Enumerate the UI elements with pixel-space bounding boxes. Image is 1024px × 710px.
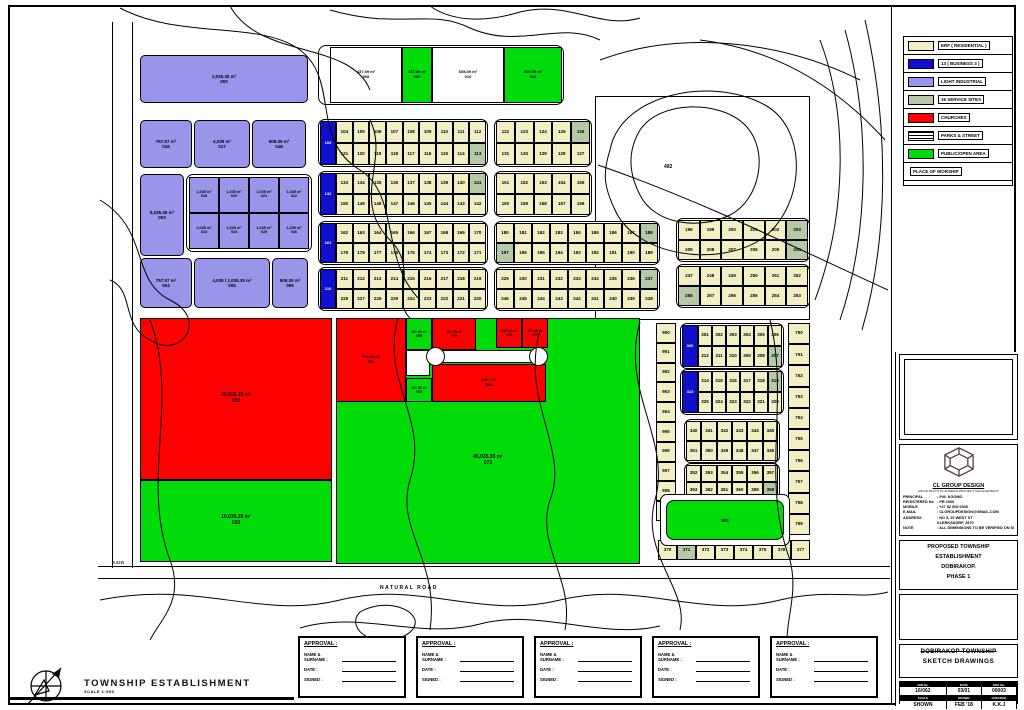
plot-cell-309: 309 <box>740 346 754 367</box>
plot-cell-182: 182 <box>532 223 550 243</box>
plot-cell-226: 226 <box>369 289 386 309</box>
plot-cell-341: 341 <box>701 421 716 441</box>
plot-cell-173: 173 <box>436 243 453 263</box>
signature-line <box>696 678 750 682</box>
plot-cell-902: 902 <box>656 363 676 383</box>
plot-cell-346: 346 <box>763 441 778 461</box>
signature-line <box>460 668 514 672</box>
cul-de-sac-street <box>426 346 548 368</box>
plot-cell-208: 208 <box>700 240 722 260</box>
plot-cell-130: 130 <box>515 143 534 165</box>
plot-cell-121: 121 <box>336 143 353 165</box>
zone-label: 437.09 m²059 <box>411 330 427 338</box>
signature-line <box>578 658 632 662</box>
approval-field-label: DATE : <box>776 667 814 672</box>
industrial-block-005: 4,035 / 1,035.35 m²005 <box>194 258 270 308</box>
plot-cell-318: 318 <box>754 371 768 392</box>
industrial-cell-025: 1,035 m²025 <box>249 213 279 249</box>
plot-cell-302: 302 <box>712 325 726 346</box>
plot-block: 2292302312322332342352362372462452442432… <box>494 267 660 311</box>
plot-cell-348: 348 <box>732 441 747 461</box>
project-title-line: PROPOSED TOWNSHIP <box>900 543 1017 553</box>
road-edge-bottom-1 <box>98 566 890 567</box>
table-cell: 00003 <box>982 687 1017 695</box>
industrial-label: 509.35 m²018 <box>269 139 290 150</box>
road-edge-left-1 <box>112 22 113 568</box>
legend-row: LIGHT INDUSTRIAL <box>904 73 1012 91</box>
approval-box-2: APPROVAL :NAME & SURNAME :DATE :SIGNED : <box>416 636 524 698</box>
plot-cell-223: 223 <box>419 289 436 309</box>
footer-underline <box>8 697 294 700</box>
plot-block: 1611621631641651661671681691701791781771… <box>318 221 488 265</box>
plot-cell-258: 258 <box>678 286 700 306</box>
plot-cell-195: 195 <box>532 243 550 263</box>
plot-cell-904: 904 <box>656 402 676 422</box>
zone-label: 10,035.35 m²033 <box>221 515 251 527</box>
plot-cell-203: 203 <box>786 220 808 240</box>
zone-label: 437.09 m²067 <box>527 329 543 337</box>
table-cell: FEB '18 <box>947 701 982 710</box>
plot-cell-314: 314 <box>698 371 712 392</box>
plot-cell-160: 160 <box>496 194 515 215</box>
plot-cell-108: 108 <box>403 121 420 143</box>
business-plot-103: 103 <box>320 121 336 165</box>
plot-cell-907: 907 <box>656 462 676 482</box>
plot-cell-176: 176 <box>386 243 403 263</box>
plot-cell-190: 190 <box>622 243 640 263</box>
plot-cell-325: 325 <box>698 392 712 413</box>
plot-cell-209: 209 <box>678 240 700 260</box>
plot-cell-148: 148 <box>369 194 386 215</box>
approval-field-row: NAME & SURNAME : <box>658 652 754 662</box>
legend-label: PARKS & STREET <box>938 131 983 140</box>
plot-block: 2102112122132142152162172182192282272262… <box>318 267 488 311</box>
plot-cell-180: 180 <box>496 223 514 243</box>
approval-field-label: NAME & SURNAME : <box>658 652 696 662</box>
business-plot-161: 161 <box>320 223 336 263</box>
plot-cell-315: 315 <box>712 371 726 392</box>
plot-cell-229: 229 <box>496 269 514 289</box>
approval-field-row: SIGNED : <box>422 677 518 682</box>
plot-cell-201: 201 <box>743 220 765 240</box>
table-cell: 16/062 <box>900 687 947 695</box>
plot-cell-344: 344 <box>747 421 762 441</box>
plot-label: 437.09 m²008 <box>357 70 375 79</box>
plot-cell-252: 252 <box>786 266 808 286</box>
signature-line <box>460 658 514 662</box>
plot-cell-159: 159 <box>515 194 534 215</box>
plot-cell-137: 137 <box>403 173 420 194</box>
plot-cell-903: 903 <box>656 382 676 402</box>
plot-cell-186: 186 <box>604 223 622 243</box>
plot-cell-219: 219 <box>469 269 486 289</box>
plot-cell-125: 125 <box>552 121 571 143</box>
plot-cell-139: 139 <box>436 173 453 194</box>
approval-title: APPROVAL : <box>422 641 518 647</box>
approval-field-row: DATE : <box>422 667 518 672</box>
industrial-cell-021: 1,035 m²021 <box>249 177 279 213</box>
plot-cell-310: 310 <box>726 346 740 367</box>
legend-label: 13 ( BUSINESS 3 ) <box>938 59 983 68</box>
plot-cell-235: 235 <box>604 269 622 289</box>
plot-cell-162: 162 <box>336 223 353 243</box>
plot-block: 340341342343344345351350349348347346 <box>684 419 780 463</box>
frame-divider-right <box>891 5 892 705</box>
approval-title: APPROVAL : <box>304 641 400 647</box>
plot-cell-178: 178 <box>353 243 370 263</box>
plot-block: 198199200201202203209208207206205204 <box>676 218 810 262</box>
zone-032: 30,035.35 m²032 <box>140 318 332 480</box>
plot-block: 122123124125126131130129128127 <box>494 119 592 167</box>
plot-cell-110: 110 <box>436 121 453 143</box>
plot-cell-151: 151 <box>496 173 515 194</box>
plot-cell-196: 196 <box>514 243 532 263</box>
legend-label: PUBLIC/OPEN AREA <box>938 149 989 158</box>
industrial-label: 509.35 m²006 <box>280 278 301 289</box>
plot-cell-202: 202 <box>765 220 787 240</box>
industrial-cell-019: 1,035 m²019 <box>189 177 219 213</box>
plot-cell-128: 128 <box>552 143 571 165</box>
zone-067: 437.09 m²067 <box>522 318 548 348</box>
zone-068: 940.7 m²068 <box>432 364 546 402</box>
legend-row: ERF ( RESIDENTIAL ) <box>904 37 1012 55</box>
plot-cell-246: 246 <box>496 289 514 309</box>
industrial-cell-024: 1,035 m²024 <box>219 213 249 249</box>
plot-cell-357: 357 <box>763 465 778 482</box>
plot-block: 1321331341351361371381391401411501491481… <box>318 171 488 217</box>
plot-cell-168: 168 <box>436 223 453 243</box>
plot-cell-347: 347 <box>747 441 762 461</box>
plot-cell-257: 257 <box>700 286 722 306</box>
plot-cell-136: 136 <box>386 173 403 194</box>
plot-cell-354: 354 <box>717 465 732 482</box>
industrial-block-017: 4,035 m²017 <box>194 120 250 168</box>
industrial-cell-023: 1,035 m²023 <box>189 213 219 249</box>
zone-label: 500.50 m²064 <box>362 355 380 364</box>
approval-field-row: NAME & SURNAME : <box>540 652 636 662</box>
plot-cell-222: 222 <box>436 289 453 309</box>
legend-label: PLACE OF WORSHIP <box>910 167 962 176</box>
plot-cell-215: 215 <box>403 269 420 289</box>
plot-cell-244: 244 <box>532 289 550 309</box>
plot-cell-123: 123 <box>515 121 534 143</box>
plot-cell-321: 321 <box>754 392 768 413</box>
legend-row: PUBLIC/OPEN AREA <box>904 145 1012 163</box>
plot-cell-192: 192 <box>586 243 604 263</box>
plot-cell-753: 753 <box>788 387 810 408</box>
legend-row: PARKS & STREET <box>904 127 1012 145</box>
plot-cell-183: 183 <box>550 223 568 243</box>
plot-cell-247: 247 <box>678 266 700 286</box>
footer-left: TOWNSHIP ESTABLISHMENT SCALE 1:500 <box>14 664 251 708</box>
north-compass-icon <box>14 664 70 708</box>
plot-cell-138: 138 <box>419 173 436 194</box>
plot-cell-184: 184 <box>568 223 586 243</box>
approval-field-label: NAME & SURNAME : <box>776 652 814 662</box>
plot-cell-234: 234 <box>586 269 604 289</box>
plot-010: 655.09 m²010 <box>432 47 504 103</box>
plot-cell-142: 142 <box>469 194 486 215</box>
plot-cell-220: 220 <box>469 289 486 309</box>
plot-cell-239: 239 <box>622 289 640 309</box>
plot-cell-236: 236 <box>622 269 640 289</box>
plot-cell-158: 158 <box>534 194 553 215</box>
industrial-label: 1,035.35 m²002 <box>212 74 236 85</box>
plot-cell-187: 187 <box>622 223 640 243</box>
plot-cell-355: 355 <box>732 465 747 482</box>
table-cell: K.K.J <box>982 701 1017 710</box>
plot-cell-170: 170 <box>469 223 486 243</box>
approval-field-row: DATE : <box>658 667 754 672</box>
plot-cell-141: 141 <box>469 173 486 194</box>
plot-cell-256: 256 <box>721 286 743 306</box>
plot-cell-140: 140 <box>453 173 470 194</box>
plot-cell-157: 157 <box>552 194 571 215</box>
legend-label: 16 SERVICE SITES <box>938 95 984 104</box>
plot-cell-214: 214 <box>386 269 403 289</box>
plot-cell-307: 307 <box>768 346 782 367</box>
approval-field-row: SIGNED : <box>304 677 400 682</box>
approval-field-label: SIGNED : <box>304 677 342 682</box>
plot-cell-900: 900 <box>656 323 676 343</box>
plot-cell-350: 350 <box>701 441 716 461</box>
plot-cell-145: 145 <box>419 194 436 215</box>
industrial-block-003: 6,035.35 m²003 <box>140 174 184 256</box>
plot-cell-906: 906 <box>656 442 676 462</box>
approval-box-1: APPROVAL :NAME & SURNAME :DATE :SIGNED : <box>298 636 406 698</box>
plot-cell-750: 750 <box>788 323 810 344</box>
plot-cell-172: 172 <box>453 243 470 263</box>
plot-cell-122: 122 <box>496 121 515 143</box>
plot-cell-167: 167 <box>419 223 436 243</box>
signature-line <box>460 678 514 682</box>
approval-field-row: DATE : <box>776 667 872 672</box>
legend-label: CHURCHES <box>938 113 970 122</box>
plot-cell-150: 150 <box>336 194 353 215</box>
plot-cell-752: 752 <box>788 365 810 386</box>
plot-cell-308: 308 <box>754 346 768 367</box>
project-title-line: DOBIRAKOP. <box>900 563 1017 573</box>
plot-cell-759: 759 <box>788 514 810 535</box>
plot-cell-111: 111 <box>453 121 470 143</box>
industrial-block-006: 509.35 m²006 <box>272 258 308 308</box>
plot-cell-194: 194 <box>550 243 568 263</box>
plot-cell-143: 143 <box>453 194 470 215</box>
signature-line <box>342 678 396 682</box>
plot-cell-193: 193 <box>568 243 586 263</box>
legend-swatch <box>908 113 934 123</box>
plot-strip: 900901902903904905906907908909 <box>656 323 676 521</box>
plot-cell-120: 120 <box>353 143 370 165</box>
plot-cell-377: 377 <box>791 540 810 560</box>
drawing-sheet: 30,035.35 m²03210,035.35 m²03345,035.35 … <box>0 0 1024 710</box>
plot-cell-221: 221 <box>453 289 470 309</box>
plot-cell-754: 754 <box>788 408 810 429</box>
plot-cell-349: 349 <box>717 441 732 461</box>
plot-cell-199: 199 <box>700 220 722 240</box>
plot-cell-233: 233 <box>568 269 586 289</box>
plot-cell-165: 165 <box>386 223 403 243</box>
signature-line <box>696 668 750 672</box>
plot-cell-126: 126 <box>571 121 590 143</box>
plot-cell-156: 156 <box>571 194 590 215</box>
plot-cell-230: 230 <box>514 269 532 289</box>
approval-title: APPROVAL : <box>776 641 872 647</box>
approval-field-label: SIGNED : <box>422 677 460 682</box>
plot-cell-129: 129 <box>534 143 553 165</box>
plot-cell-751: 751 <box>788 344 810 365</box>
project-title-box: PROPOSED TOWNSHIPESTABLISHMENTDOBIRAKOP.… <box>899 540 1018 590</box>
legend: ERF ( RESIDENTIAL )13 ( BUSINESS 3 )LIGH… <box>903 36 1013 186</box>
plot-cell-131: 131 <box>496 143 515 165</box>
drawing-title-line2: SKETCH DRAWINGS <box>900 658 1017 665</box>
plot-cell-144: 144 <box>436 194 453 215</box>
plot-cell-152: 152 <box>515 173 534 194</box>
signature-line <box>814 658 868 662</box>
legend-row: PLACE OF WORSHIP <box>904 163 1012 181</box>
plot-cell-254: 254 <box>765 286 787 306</box>
industrial-cell-026: 1,035 m²026 <box>279 213 309 249</box>
company-box: CL GROUP DESIGN ARCHITECTS PLANNERS PROJ… <box>899 444 1018 536</box>
signature-line <box>342 658 396 662</box>
plot-cell-755: 755 <box>788 429 810 450</box>
plot-cell-155: 155 <box>571 173 590 194</box>
plot-cell-311: 311 <box>712 346 726 367</box>
plot-block: 300301302303304305306312311310309308307 <box>680 323 784 369</box>
plot-cell-115: 115 <box>436 143 453 165</box>
industrial-cell-022: 1,035 m²022 <box>279 177 309 213</box>
plot-block: 1031041051061071081091101111121211201191… <box>318 119 488 167</box>
plot-cell-218: 218 <box>453 269 470 289</box>
plot-block: 1801811821831841851861871881971961951941… <box>494 221 660 265</box>
plot-cell-756: 756 <box>788 450 810 471</box>
legend-swatch <box>908 131 934 141</box>
plot-cell-323: 323 <box>726 392 740 413</box>
approval-field-label: SIGNED : <box>658 677 696 682</box>
plot-cell-200: 200 <box>721 220 743 240</box>
legend-label: ERF ( RESIDENTIAL ) <box>938 41 990 50</box>
business-plot-132: 132 <box>320 173 336 215</box>
plot-cell-351: 351 <box>686 441 701 461</box>
plot-cell-179: 179 <box>336 243 353 263</box>
plot-label: 509.35 m²034 <box>524 70 542 79</box>
project-title-line: ESTABLISHMENT <box>900 553 1017 563</box>
plot-cell-312: 312 <box>698 346 712 367</box>
approval-box-3: APPROVAL :NAME & SURNAME :DATE :SIGNED : <box>534 636 642 698</box>
plot-block: 313314315316317318319325324323322321320 <box>680 369 784 415</box>
plot-cell-189: 189 <box>640 243 658 263</box>
plot-cell-213: 213 <box>369 269 386 289</box>
plot-cell-149: 149 <box>353 194 370 215</box>
plot-cell-251: 251 <box>765 266 787 286</box>
approval-field-label: NAME & SURNAME : <box>304 652 342 662</box>
footer-title: TOWNSHIP ESTABLISHMENT <box>84 678 251 689</box>
plot-cell-249: 249 <box>721 266 743 286</box>
approval-field-row: DATE : <box>540 667 636 672</box>
plot-cell-154: 154 <box>552 173 571 194</box>
approval-field-label: SIGNED : <box>540 677 578 682</box>
plot-034: 509.35 m²034 <box>504 47 562 103</box>
plot-cell-320: 320 <box>768 392 782 413</box>
plot-cell-164: 164 <box>369 223 386 243</box>
plot-cell-225: 225 <box>386 289 403 309</box>
plot-009: 437.09 m²009 <box>402 47 432 103</box>
plot-cell-188: 188 <box>640 223 658 243</box>
plot-cell-175: 175 <box>403 243 420 263</box>
zone-066: 437.09 m²066 <box>496 318 522 348</box>
road-edge-bottom-2 <box>98 578 890 579</box>
plot-cell-205: 205 <box>765 240 787 260</box>
industrial-label: 757.57 m²016 <box>156 139 177 150</box>
legend-swatch <box>908 95 934 105</box>
plot-cell-212: 212 <box>353 269 370 289</box>
plot-cell-228: 228 <box>336 289 353 309</box>
plot-cell-345: 345 <box>763 421 778 441</box>
approval-field-row: NAME & SURNAME : <box>776 652 872 662</box>
title-block: CL GROUP DESIGN ARCHITECTS PLANNERS PROJ… <box>895 352 1022 706</box>
plot-cell-901: 901 <box>656 343 676 363</box>
plot-cell-245: 245 <box>514 289 532 309</box>
industrial-cell-block: 1,035 m²0191,035 m²0201,035 m²0211,035 m… <box>186 174 312 252</box>
legend-swatch <box>908 41 934 51</box>
approval-field-label: NAME & SURNAME : <box>422 652 460 662</box>
approval-field-label: DATE : <box>658 667 696 672</box>
signature-line <box>342 668 396 672</box>
plot-cell-217: 217 <box>436 269 453 289</box>
signature-line <box>578 668 632 672</box>
plot-cell-306: 306 <box>768 325 782 346</box>
plot-cell-146: 146 <box>403 194 420 215</box>
legend-swatch <box>908 59 934 69</box>
legend-row: 16 SERVICE SITES <box>904 91 1012 109</box>
zone-label: 940.7 m²068 <box>481 378 497 387</box>
map-label-natural-road: NATURAL ROAD <box>380 585 438 591</box>
plot-cell-204: 204 <box>786 240 808 260</box>
plot-cell-353: 353 <box>701 465 716 482</box>
plot-cell-163: 163 <box>353 223 370 243</box>
company-info-row: NOTE: ALL DIMENSIONS TO BE VERIFIED ON S… <box>900 526 1017 531</box>
table-cell: SHOWN <box>900 701 947 710</box>
legend-swatch <box>908 149 934 159</box>
approval-field-row: NAME & SURNAME : <box>422 652 518 662</box>
plot-cell-105: 105 <box>353 121 370 143</box>
plot-cell-117: 117 <box>403 143 420 165</box>
project-title-line: PHASE 1 <box>900 573 1017 583</box>
plot-cell-119: 119 <box>369 143 386 165</box>
legend-swatch <box>908 77 934 87</box>
plot-cell-905: 905 <box>656 422 676 442</box>
plot-008: 437.09 m²008 <box>330 47 402 103</box>
plot-cell-124: 124 <box>534 121 553 143</box>
plot-block: 151152153154155160159158157156 <box>494 171 592 217</box>
drawing-title-box: DOBIRAKOP TOWNSHIP SKETCH DRAWINGS <box>899 644 1018 678</box>
plot-cell-305: 305 <box>754 325 768 346</box>
map-label-r-str: R STR <box>112 560 124 565</box>
title-block-empty-box-1 <box>899 354 1018 440</box>
approval-field-label: DATE : <box>304 667 342 672</box>
zone-label: 45,035.35 m²073 <box>473 455 503 467</box>
plot-cell-757: 757 <box>788 471 810 492</box>
approval-field-row: NAME & SURNAME : <box>304 652 400 662</box>
zone-064: 500.50 m²064 <box>336 318 406 402</box>
drawing-title-line1: DOBIRAKOP TOWNSHIP <box>900 649 1017 655</box>
signature-line <box>814 668 868 672</box>
plot-cell-240: 240 <box>604 289 622 309</box>
plot-cell-319: 319 <box>768 371 782 392</box>
plot-strip: 750751752753754755756757758759 <box>788 323 810 535</box>
plot-cell-248: 248 <box>700 266 722 286</box>
plot-cell-317: 317 <box>740 371 754 392</box>
